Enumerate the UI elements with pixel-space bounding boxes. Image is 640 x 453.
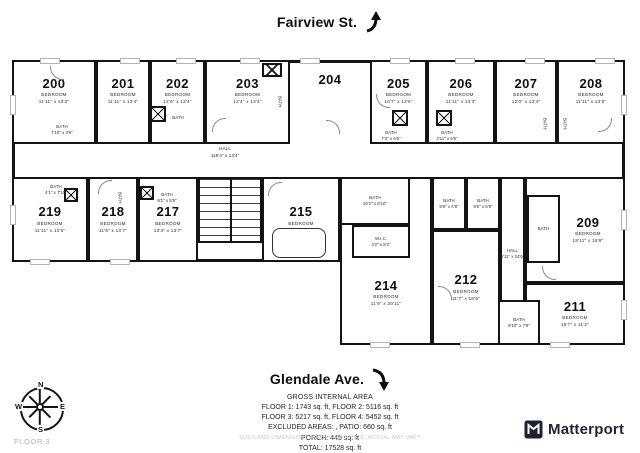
room-dims: 12'4" x 13'4" [233,99,261,105]
street-label-top: Fairview St. [250,10,410,34]
room-number: 204 [319,73,342,87]
room-number: 219 [39,205,62,219]
room-dims: 11'11" x 13'3" [39,99,70,105]
room-number: 211 [564,300,586,314]
room-type: BEDROOM [165,92,191,98]
room-dims: 11'11" x 13'5" [35,228,66,234]
wic-215: W.I.C. 4'2" x 8'2" [352,225,410,258]
window-marker [10,205,16,225]
room-type: BEDROOM [100,221,126,227]
area-summary: GROSS INTERNAL AREA FLOOR 1: 1743 sq. ft… [220,393,440,453]
bath-200-label: BATH 7'10" x 3'6" [42,124,82,135]
bath-218-label: BATH [117,186,123,210]
area-line: EXCLUDED AREAS: , PATIO: 660 sq. ft [220,423,440,433]
window-marker [30,259,50,265]
window-marker [40,58,60,64]
window-marker [10,95,16,115]
room-dims: 11'9" x 30'11" [371,301,402,307]
bath-207-label: BATH [542,112,548,136]
room-type: BEDROOM [373,294,399,300]
window-marker [300,58,320,64]
window-marker [110,259,130,265]
shaft-x-icon [150,106,166,122]
room-number: 217 [157,205,180,219]
bath-215: BATH 10'2" x 8'10" [340,177,410,225]
room-number: 207 [515,77,538,91]
floor-label: FLOOR 3 [14,437,50,446]
room-dims: 11'11" x 13'4" [108,99,139,105]
window-marker [621,95,627,115]
compass-south: S [37,425,44,434]
bath-label: BATH [277,90,283,114]
bathtub-icon [272,228,326,258]
area-title: GROSS INTERNAL AREA [220,393,440,403]
bath-label: BATH [542,112,548,136]
bath-202-label: BATH [165,115,191,121]
room-dims: 11'11" x 13'5" [576,99,607,105]
hall-main-name: HALL [180,147,270,154]
room-218: 218 BEDROOM 11'5" x 13'7" [88,177,138,262]
room-dims: 11'5" x 13'7" [99,228,127,234]
room-202: 202 BEDROOM 12'0" x 13'4" [150,60,205,144]
bath-208-label: BATH [562,112,568,136]
room-number: 212 [455,273,478,287]
bath-label: BATH [538,226,549,232]
floorplan-canvas: Fairview St. HALL 119'4" x 13'4" 200 BED… [0,0,640,453]
room-type: BEDROOM [235,92,261,98]
bath-211: BATH 9'10" x 7'9" [498,300,540,345]
bath-label: BATH [165,115,191,121]
room-type: BEDROOM [448,92,474,98]
curved-arrow-up-icon [363,10,383,34]
bath-dims: 9'10" x 7'9" [508,323,530,329]
area-line: FLOOR 3: 5217 sq. ft, FLOOR 4: 5452 sq. … [220,413,440,423]
bath-dims: 10'2" x 8'10" [363,201,387,207]
room-number: 206 [450,77,473,91]
bath-205-label: BATH 7'3" x 6'6" [372,130,410,141]
room-number: 214 [375,279,398,293]
room-type: BEDROOM [513,92,539,98]
staircase [198,177,262,243]
window-marker [621,300,627,320]
room-dims: 11'11" x 13'3" [446,99,477,105]
room-201: 201 BEDROOM 11'11" x 13'4" [96,60,150,144]
matterport-icon [524,420,543,439]
room-type: BEDROOM [110,92,136,98]
bath-203-label: BATH [277,90,283,114]
bath-209: BATH [527,195,560,263]
room-type: BEDROOM [578,92,604,98]
bath-212b: BATH 9'6" x 5'9" [466,177,500,230]
window-marker [240,58,260,64]
hall-right-dims: 6'11" x 24'6" [496,254,529,260]
room-type: BEDROOM [41,92,67,98]
room-dims: 16'7" x 11'2" [561,322,589,328]
room-204: 204 [295,66,365,94]
window-marker [455,58,475,64]
window-marker [176,58,196,64]
room-type: BEDROOM [562,315,588,321]
bath-dims: 9'9" x 4'8" [439,204,458,210]
brand-logo: Matterport [524,420,624,439]
hall-main-dims: 119'4" x 13'4" [180,154,270,161]
curved-arrow-down-icon [370,366,390,392]
shaft-x-icon [392,110,408,126]
compass-north: N [37,380,44,389]
street-name-fairview: Fairview St. [277,14,357,30]
room-number: 205 [387,77,410,91]
room-type: BEDROOM [288,221,314,227]
hall-right-label: HALL 6'11" x 24'6" [496,248,529,259]
brand-name: Matterport [548,421,624,438]
window-marker [595,58,615,64]
street-name-glendale: Glendale Ave. [270,371,364,387]
room-211: 211 BEDROOM 16'7" x 11'2" [525,283,625,345]
bath-dims: 4'11" x 6'5" [428,136,466,142]
street-label-bottom: Glendale Ave. [230,366,430,392]
room-dims: 12'0" x 13'4" [163,99,191,105]
room-type: BEDROOM [575,231,601,237]
window-marker [621,210,627,230]
shaft-x-icon [436,110,452,126]
room-number: 209 [577,216,600,230]
bath-217-label: BATH 9'1" x 5'9" [142,192,192,203]
window-marker [550,342,570,348]
room-dims: 13'3" x 13'7" [154,228,182,234]
bath-219-label: BATH 4'1" x 7'10" [34,184,78,195]
bath-label: BATH [117,186,123,210]
window-marker [460,342,480,348]
shaft-x-icon [262,63,282,77]
bath-dims: 7'10" x 3'6" [42,130,82,136]
room-type: BEDROOM [37,221,63,227]
room-dims: 11'7" x 16'9" [452,296,480,302]
room-type: BEDROOM [155,221,181,227]
room-dims: 12'0" x 13'4" [512,99,540,105]
area-line: TOTAL: 17528 sq. ft [220,444,440,453]
stair-rail [230,179,232,241]
room-dims: 18'11" x 19'9" [573,238,604,244]
disclaimer-text: SIZES AND DIMENSIONS ARE APPROXIMATE, AC… [195,435,465,441]
bath-dims: 9'6" x 5'9" [473,204,492,210]
window-marker [525,58,545,64]
area-line: FLOOR 1: 1743 sq. ft, FLOOR 2: 5116 sq. … [220,403,440,413]
bath-212a: BATH 9'9" x 4'8" [432,177,466,230]
room-number: 202 [166,77,189,91]
compass-rose: N E S W [14,381,66,433]
room-type: BEDROOM [453,289,479,295]
bath-dims: 4'1" x 7'10" [34,190,78,196]
room-number: 208 [580,77,603,91]
window-marker [390,58,410,64]
bath-label: BATH [562,112,568,136]
compass-center [36,403,44,411]
bath-206-label: BATH 4'11" x 6'5" [428,130,466,141]
wic-dims: 4'2" x 8'2" [371,242,390,248]
window-marker [120,58,140,64]
hall-main-label: HALL 119'4" x 13'4" [180,147,270,160]
bath-dims: 7'3" x 6'6" [372,136,410,142]
window-marker [370,342,390,348]
room-number: 215 [290,205,313,219]
compass-east: E [59,402,66,411]
bath-dims: 9'1" x 5'9" [142,198,192,204]
compass-west: W [14,402,23,411]
room-number: 203 [236,77,259,91]
room-number: 201 [112,77,135,91]
